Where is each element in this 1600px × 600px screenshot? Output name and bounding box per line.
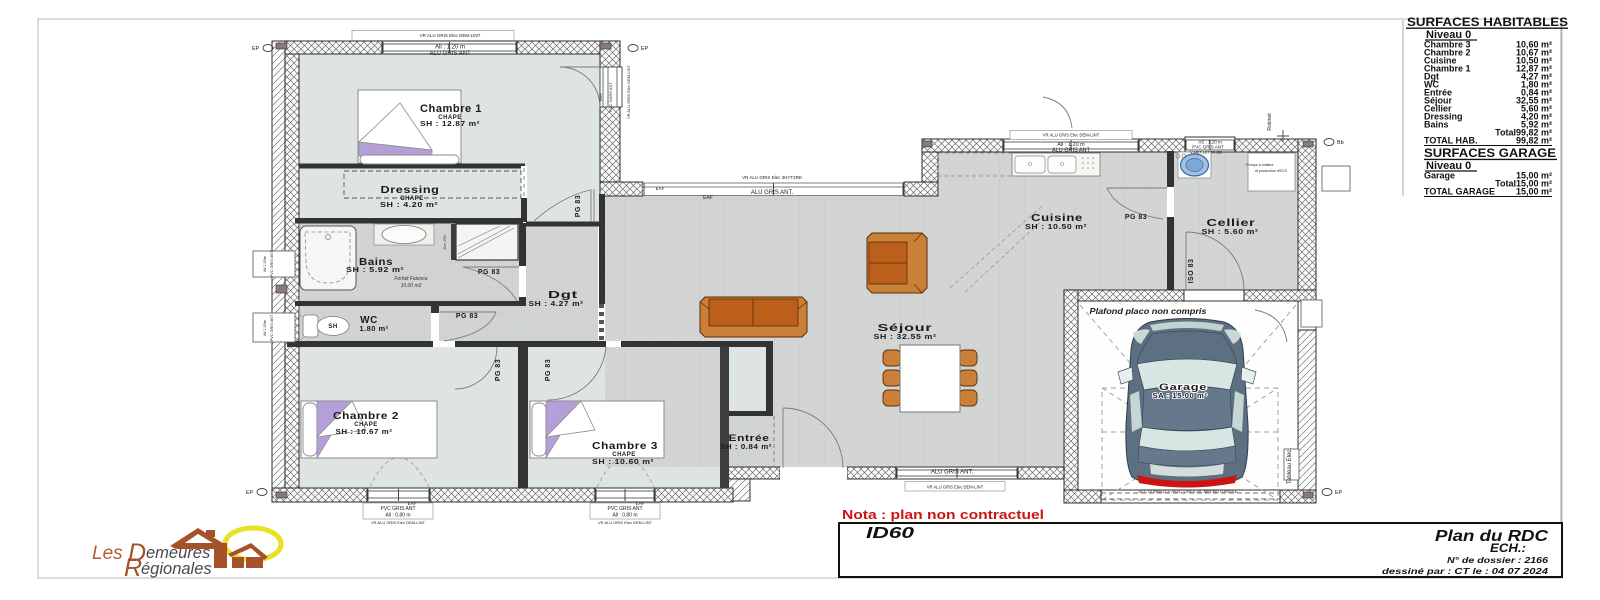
svg-text:EAF: EAF (408, 501, 417, 506)
svg-text:EAF: EAF (636, 501, 645, 506)
svg-text:10.00 m2: 10.00 m2 (401, 283, 422, 289)
svg-text:SH : 10.50 m²: SH : 10.50 m² (1025, 222, 1087, 231)
svg-text:SH : 10.67 m²: SH : 10.67 m² (336, 427, 393, 436)
svg-text:Chambre 2: Chambre 2 (333, 411, 399, 422)
svg-text:et production d'ECS: et production d'ECS (1255, 169, 1287, 173)
svg-text:PG 83: PG 83 (575, 195, 582, 217)
svg-text:PG 83: PG 83 (1125, 214, 1147, 221)
svg-text:SH : 4.20 m²: SH : 4.20 m² (380, 200, 438, 209)
svg-text:Bains: Bains (1424, 120, 1449, 130)
svg-text:SH : 32.55 m²: SH : 32.55 m² (874, 332, 937, 341)
svg-text:Pompe à chaleur: Pompe à chaleur (1246, 163, 1274, 167)
svg-text:Entrée: Entrée (729, 433, 770, 443)
svg-text:All : 0.80 m: All : 0.80 m (612, 513, 637, 519)
svg-text:Garage: Garage (1159, 382, 1207, 393)
svg-text:V.MET.LETTR BB: V.MET.LETTR BB (1190, 150, 1222, 155)
svg-text:Chambre 1: Chambre 1 (420, 103, 482, 115)
svg-text:EP: EP (641, 46, 649, 52)
svg-text:All 1.20m: All 1.20m (263, 256, 267, 272)
svg-text:PG 83: PG 83 (456, 313, 478, 320)
svg-text:égionales: égionales (141, 560, 212, 578)
svg-text:Les: Les (92, 543, 123, 564)
svg-text:All : 0.80 m: All : 0.80 m (385, 513, 410, 519)
svg-text:Nota : plan non contractuel: Nota : plan non contractuel (842, 508, 1044, 522)
svg-text:ID60: ID60 (866, 525, 914, 542)
svg-text:VR ALU GRIS Elec DEM-LINT: VR ALU GRIS Elec DEM-LINT (371, 520, 426, 525)
svg-text:SA : 15.00 m²: SA : 15.00 m² (1153, 393, 1208, 400)
svg-text:PG 83: PG 83 (545, 359, 552, 381)
svg-text:PVC GRIS ANT: PVC GRIS ANT (607, 506, 642, 512)
svg-text:VR ALU GRIS Elec DEM-LINT: VR ALU GRIS Elec DEM-LINT (927, 485, 984, 490)
svg-text:99,82 m²: 99,82 m² (1516, 136, 1552, 146)
svg-text:TOTAL HAB.: TOTAL HAB. (1424, 136, 1478, 146)
svg-text:EAF: EAF (656, 186, 665, 191)
svg-text:PVC GRIS ANT: PVC GRIS ANT (380, 506, 415, 512)
svg-text:SH : 0.84 m²: SH : 0.84 m² (720, 444, 772, 451)
svg-text:1.80 m²: 1.80 m² (359, 324, 388, 333)
svg-text:EAF: EAF (598, 93, 603, 101)
svg-text:PVC GRIS ANT: PVC GRIS ANT (270, 314, 274, 341)
svg-text:Dec 2R2: Dec 2R2 (443, 235, 447, 250)
svg-text:SURFACES HABITABLES: SURFACES HABITABLES (1407, 15, 1568, 29)
svg-text:EP: EP (246, 490, 254, 496)
svg-text:EAF: EAF (703, 195, 713, 201)
svg-text:Forfait Faience: Forfait Faience (394, 276, 428, 282)
svg-text:ISO 83: ISO 83 (1188, 259, 1195, 284)
svg-text:PVC GARS ANT: PVC GARS ANT (608, 82, 613, 112)
svg-text:Plafond placo non compris: Plafond placo non compris (1090, 306, 1207, 316)
svg-text:SH : 5.60 m²: SH : 5.60 m² (1202, 227, 1259, 236)
svg-text:Chambre 3: Chambre 3 (592, 441, 658, 452)
svg-text:Garage: Garage (1424, 171, 1455, 181)
svg-text:SH : 10.60 m²: SH : 10.60 m² (592, 457, 654, 466)
svg-text:VR ALU GRIS Elec DEM-LINT: VR ALU GRIS Elec DEM-LINT (626, 64, 631, 119)
svg-text:SH : 12.87 m²: SH : 12.87 m² (420, 119, 480, 128)
svg-text:SURFACES GARAGE: SURFACES GARAGE (1424, 148, 1556, 160)
svg-text:EP: EP (252, 46, 260, 52)
svg-text:SH : 4.27 m²: SH : 4.27 m² (529, 299, 584, 308)
svg-text:R: R (124, 554, 142, 582)
svg-text:ECH.:: ECH.: (1490, 541, 1526, 555)
svg-text:15,00 m²: 15,00 m² (1516, 187, 1552, 197)
svg-text:VR ALU GRIS Elec DEM-LINT: VR ALU GRIS Elec DEM-LINT (1043, 133, 1100, 138)
svg-text:VR ALU GRIS Elec 3HYT2RE: VR ALU GRIS Elec 3HYT2RE (742, 175, 802, 180)
svg-text:All : 1.20 m: All : 1.20 m (435, 45, 465, 51)
svg-text:PG 83: PG 83 (495, 359, 502, 381)
svg-text:VR ALU GRIS Elec DEM-LINT: VR ALU GRIS Elec DEM-LINT (420, 33, 481, 38)
svg-text:ALU GRIS ANT.: ALU GRIS ANT. (751, 190, 794, 196)
svg-text:All 1.20m: All 1.20m (263, 320, 267, 336)
svg-text:ALU GRIS ANT: ALU GRIS ANT (429, 51, 471, 57)
svg-text:Bb: Bb (1337, 140, 1344, 146)
svg-text:N° de dossier : 2166: N° de dossier : 2166 (1447, 555, 1548, 565)
svg-text:PG 83: PG 83 (478, 269, 500, 276)
svg-text:TOTAL GARAGE: TOTAL GARAGE (1424, 187, 1495, 197)
svg-text:Dressing: Dressing (381, 185, 440, 196)
svg-text:ALU GRIS ANT: ALU GRIS ANT (1052, 148, 1091, 154)
svg-text:SECTIONNELLE AVEC GRES AIL.MIN: SECTIONNELLE AVEC GRES AIL.MIN MOTORISEE (1138, 489, 1237, 494)
svg-text:VR ALU GRIS Elec DEM-LINT: VR ALU GRIS Elec DEM-LINT (598, 520, 653, 525)
svg-text:SH: SH (328, 324, 337, 330)
svg-text:ALU GRIS ANT.: ALU GRIS ANT. (931, 470, 974, 476)
svg-text:dessiné par : CT le : 04 07: dessiné par : CT le : 04 07 2024 (1382, 566, 1548, 576)
svg-text:EP: EP (1335, 490, 1343, 496)
svg-text:Tableau Elec.: Tableau Elec. (1287, 448, 1293, 484)
svg-text:PVC GRIS ANT: PVC GRIS ANT (270, 250, 274, 277)
svg-text:Robinet: Robinet (1267, 113, 1273, 131)
svg-text:SH : 5.92 m²: SH : 5.92 m² (346, 265, 404, 274)
